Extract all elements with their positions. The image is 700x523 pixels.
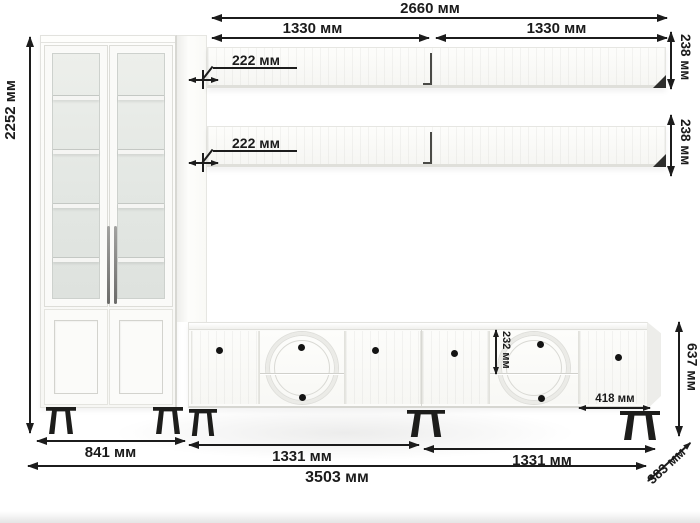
interior-shelf [118,95,164,100]
dim-arrow-door-width [579,407,650,409]
door-knob [615,354,622,361]
door-knob [451,350,458,357]
glass-door-left [44,45,108,307]
dim-label-stand-height: 637 мм [684,343,699,391]
dim-label-shelf-height-bottom: 238 мм [677,119,692,165]
glass-pane [52,53,100,299]
stand-door [422,331,489,404]
door-knob [372,347,379,354]
dim-arrow-shelf-height-top [670,32,672,89]
dim-arrow-shelf-depth-bottom [189,162,218,164]
dim-label-drawer-height: 232 мм [500,331,512,369]
shelf-joint [430,53,432,84]
floor-line [0,511,700,523]
dim-label-shelf-right: 1330 мм [494,21,619,38]
witness-tick [202,70,204,89]
stand-top-board [189,323,647,330]
dim-arrow-drawer-height [495,330,497,374]
dim-arrow-shelf-depth-top [189,79,218,81]
lower-panel-door-left [44,309,108,405]
interior-shelf [118,257,164,262]
drawer-divider [260,373,344,374]
dim-label-total-top: 2660 мм [365,1,495,18]
dim-label-stand-right-width: 1331 мм [487,453,597,470]
drawer-knob [299,394,306,401]
stand-door [191,331,259,404]
dim-label-total-width: 3503 мм [282,469,392,487]
dim-label-stand-left-width: 1331 мм [247,449,357,466]
furniture-dimension-diagram: 2660 мм 1330 мм 1330 мм 238 мм 238 мм 22… [0,0,700,523]
dim-label-shelf-left: 1330 мм [250,21,375,38]
door-knob [216,347,223,354]
dim-label-cabinet-width: 841 мм [58,445,163,462]
dim-label-shelf-depth-bottom: 222 мм [212,136,300,151]
dim-arrow-cabinet-height [29,37,31,433]
dim-arrow-shelf-height-bottom [670,115,672,176]
interior-shelf [53,149,99,154]
interior-shelf [118,149,164,154]
glass-door-right [109,45,173,307]
interior-shelf [53,95,99,100]
dim-label-shelf-height-top: 238 мм [677,34,692,80]
interior-shelf [118,203,164,208]
stand-door [345,331,421,404]
cabinet-cornice [41,36,175,43]
drawer-knob [538,395,545,402]
dim-label-shelf-depth-top: 222 мм [212,53,300,68]
door-handle [107,226,110,304]
door-handle [114,226,117,304]
glass-pane [117,53,165,299]
shelf-joint [430,132,432,163]
interior-shelf [53,203,99,208]
dim-arrow-stand-right-width [424,448,655,450]
witness-tick [202,153,204,172]
drawer-knob [298,344,305,351]
ring-decoration [266,332,338,404]
dim-arrow-cabinet-width [37,440,185,442]
dim-label-cabinet-height: 2252 мм [3,80,20,140]
drawer-divider [490,373,578,374]
dim-label-door-width: 418 мм [578,393,652,406]
dim-arrow-stand-left-width [189,444,419,446]
dim-arrow-stand-height [678,322,680,436]
interior-shelf [53,257,99,262]
display-cabinet [40,35,177,408]
lower-panel-door-right [109,309,173,405]
drawer-knob [537,341,544,348]
